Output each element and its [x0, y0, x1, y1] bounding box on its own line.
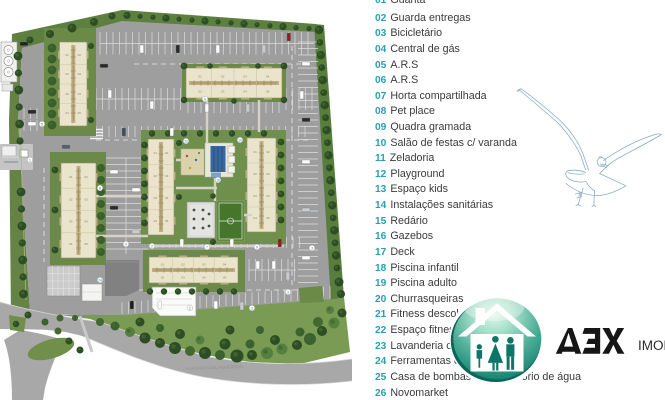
- svg-text:IMOB: IMOB: [638, 338, 665, 353]
